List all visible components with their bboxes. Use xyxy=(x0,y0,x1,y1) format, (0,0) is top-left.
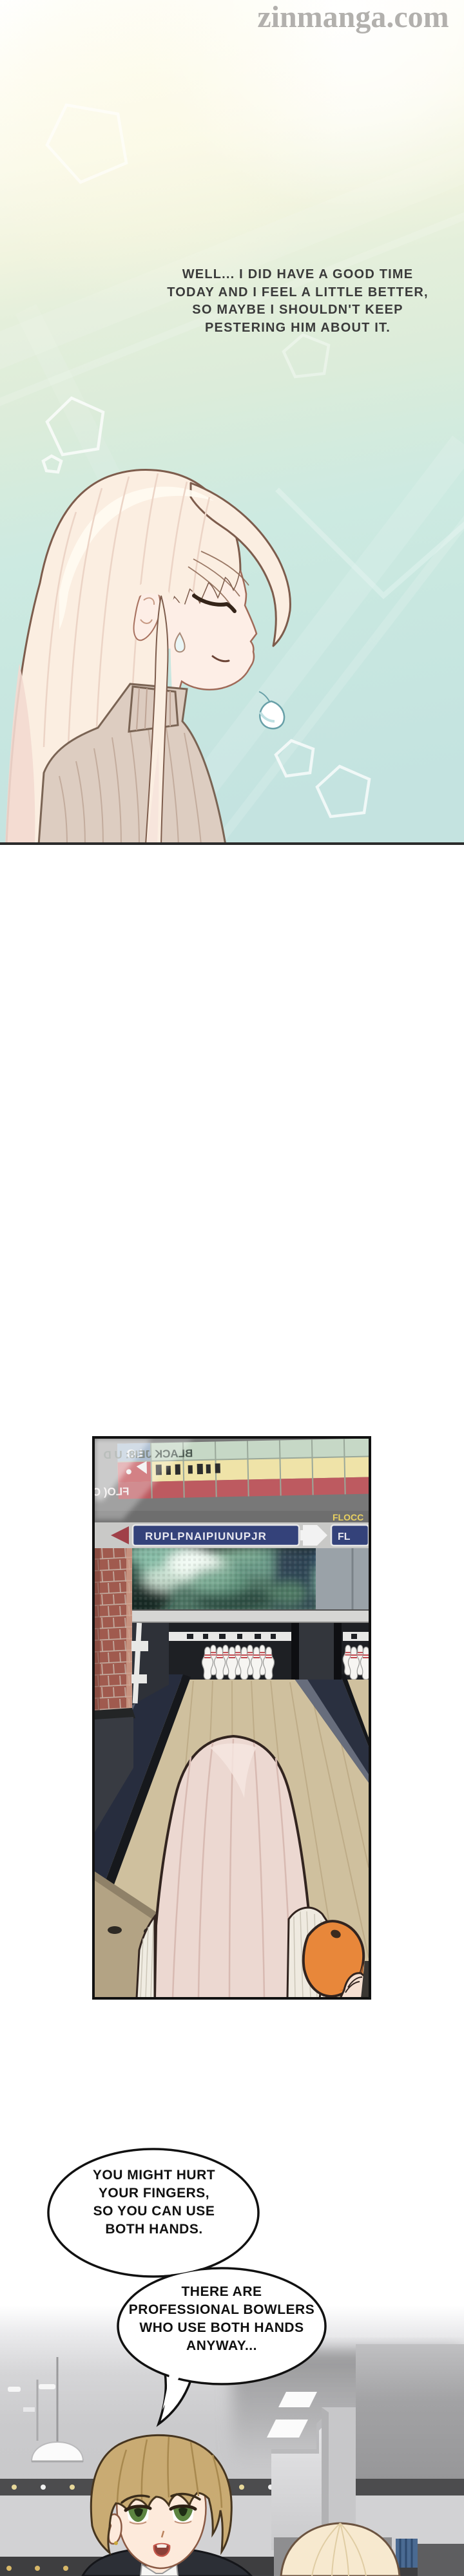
svg-text:RUPLPNAIPIUNUPJR: RUPLPNAIPIUNUPJR xyxy=(145,1530,267,1542)
svg-text:FL: FL xyxy=(338,1531,351,1542)
svg-text:FLOCC: FLOCC xyxy=(333,1512,363,1522)
